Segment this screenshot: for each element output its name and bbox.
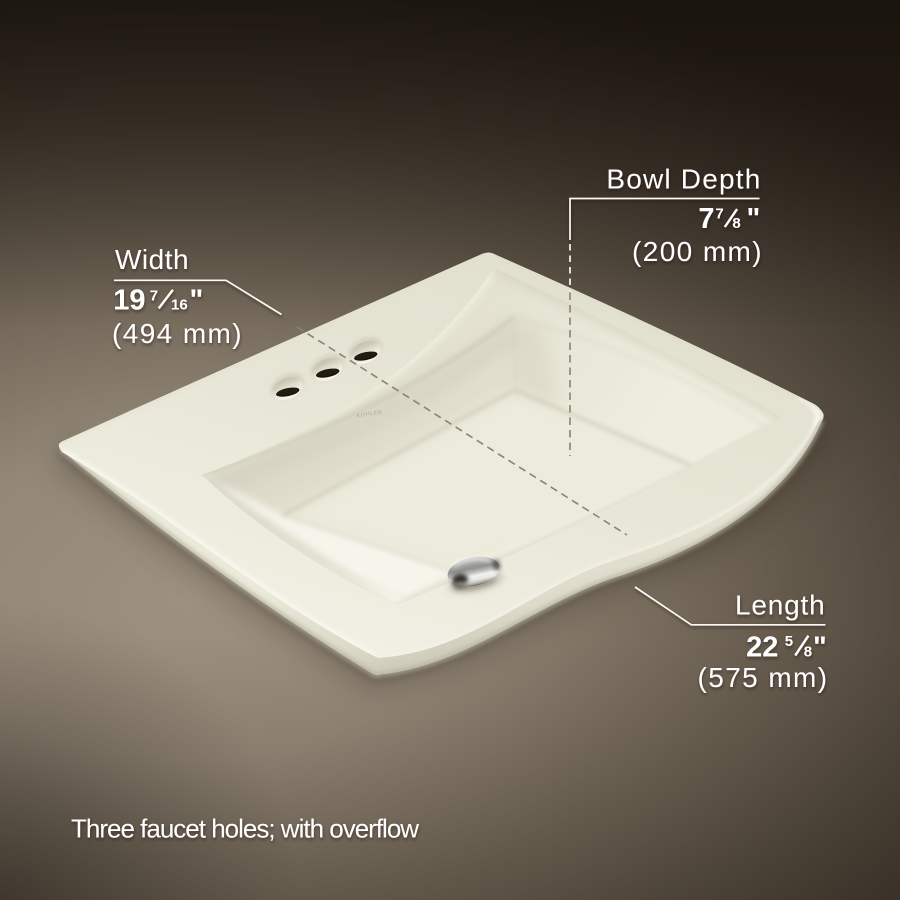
svg-text:16: 16 <box>171 296 188 313</box>
svg-text:8: 8 <box>804 644 812 661</box>
svg-text:7: 7 <box>150 287 158 304</box>
svg-text:": " <box>813 632 827 664</box>
svg-text:": " <box>747 203 761 235</box>
svg-text:5: 5 <box>785 633 793 650</box>
svg-text:(200 mm): (200 mm) <box>632 236 763 267</box>
svg-text:7: 7 <box>715 206 723 223</box>
svg-text:Width: Width <box>115 244 189 275</box>
svg-text:Bowl Depth: Bowl Depth <box>606 164 761 195</box>
svg-text:8: 8 <box>732 215 740 232</box>
svg-text:(494 mm): (494 mm) <box>112 318 243 349</box>
svg-text:Length: Length <box>735 589 825 620</box>
svg-text:22: 22 <box>746 632 778 664</box>
svg-text:Three faucet holes; with overf: Three faucet holes; with overflow <box>71 813 419 843</box>
svg-text:7: 7 <box>698 203 714 235</box>
svg-text:": " <box>190 284 204 316</box>
svg-text:(575 mm): (575 mm) <box>698 662 829 693</box>
svg-text:19: 19 <box>113 284 145 316</box>
